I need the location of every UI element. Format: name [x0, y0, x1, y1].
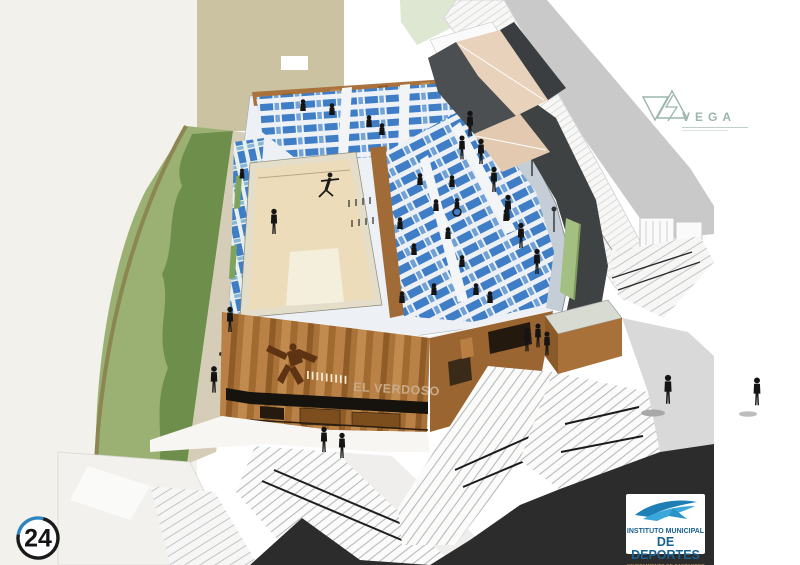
vega-logo: VEGA — [640, 86, 770, 144]
vega-logo-text: VEGA — [682, 110, 736, 124]
render-canvas: EL VERDOSO — [0, 0, 800, 565]
vega-rule — [682, 127, 748, 128]
badge-24-number: 24 — [24, 525, 52, 553]
badge-24: 24 — [13, 513, 63, 563]
terrain-notch — [281, 56, 308, 70]
imd-logo: INSTITUTO MUNICIPAL DE DEPORTES AYUNTAMI… — [626, 494, 705, 554]
imd-swoosh-icon — [631, 497, 701, 523]
imd-line2: DE DEPORTES — [626, 536, 705, 562]
architectural-render: EL VERDOSO — [0, 0, 800, 565]
vega-triangles-icon — [640, 86, 698, 132]
figure-shadow — [641, 410, 665, 417]
vega-tagline-rule — [682, 130, 728, 131]
